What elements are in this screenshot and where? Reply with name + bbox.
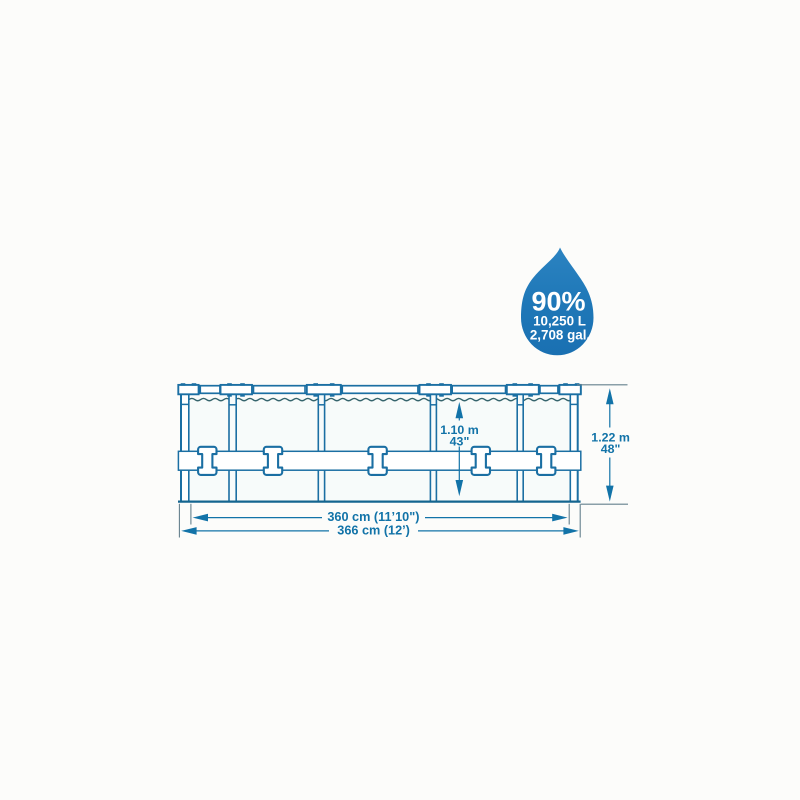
svg-text:10,250 L: 10,250 L xyxy=(533,313,586,328)
svg-text:360 cm (11’10"): 360 cm (11’10") xyxy=(327,510,419,524)
svg-text:43": 43" xyxy=(450,435,470,449)
svg-text:48": 48" xyxy=(601,442,621,456)
svg-text:2,708 gal.: 2,708 gal. xyxy=(530,328,590,343)
svg-text:90%: 90% xyxy=(531,286,585,316)
svg-text:366 cm (12’): 366 cm (12’) xyxy=(337,523,410,537)
